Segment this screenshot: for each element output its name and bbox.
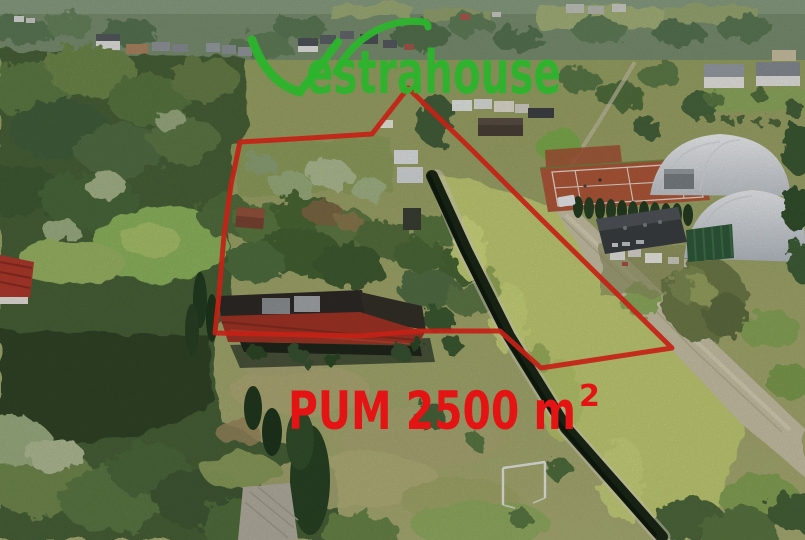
area-overlay: PUM 2500 m 2: [288, 379, 600, 442]
area-label: PUM 2500 m: [288, 381, 576, 442]
logo-text: estrahouse: [306, 38, 561, 108]
aerial-photo: estrahouse PUM 2500 m 2: [0, 0, 805, 540]
area-label-superscript: 2: [579, 379, 600, 414]
screenshot-root: estrahouse PUM 2500 m 2: [0, 0, 805, 540]
